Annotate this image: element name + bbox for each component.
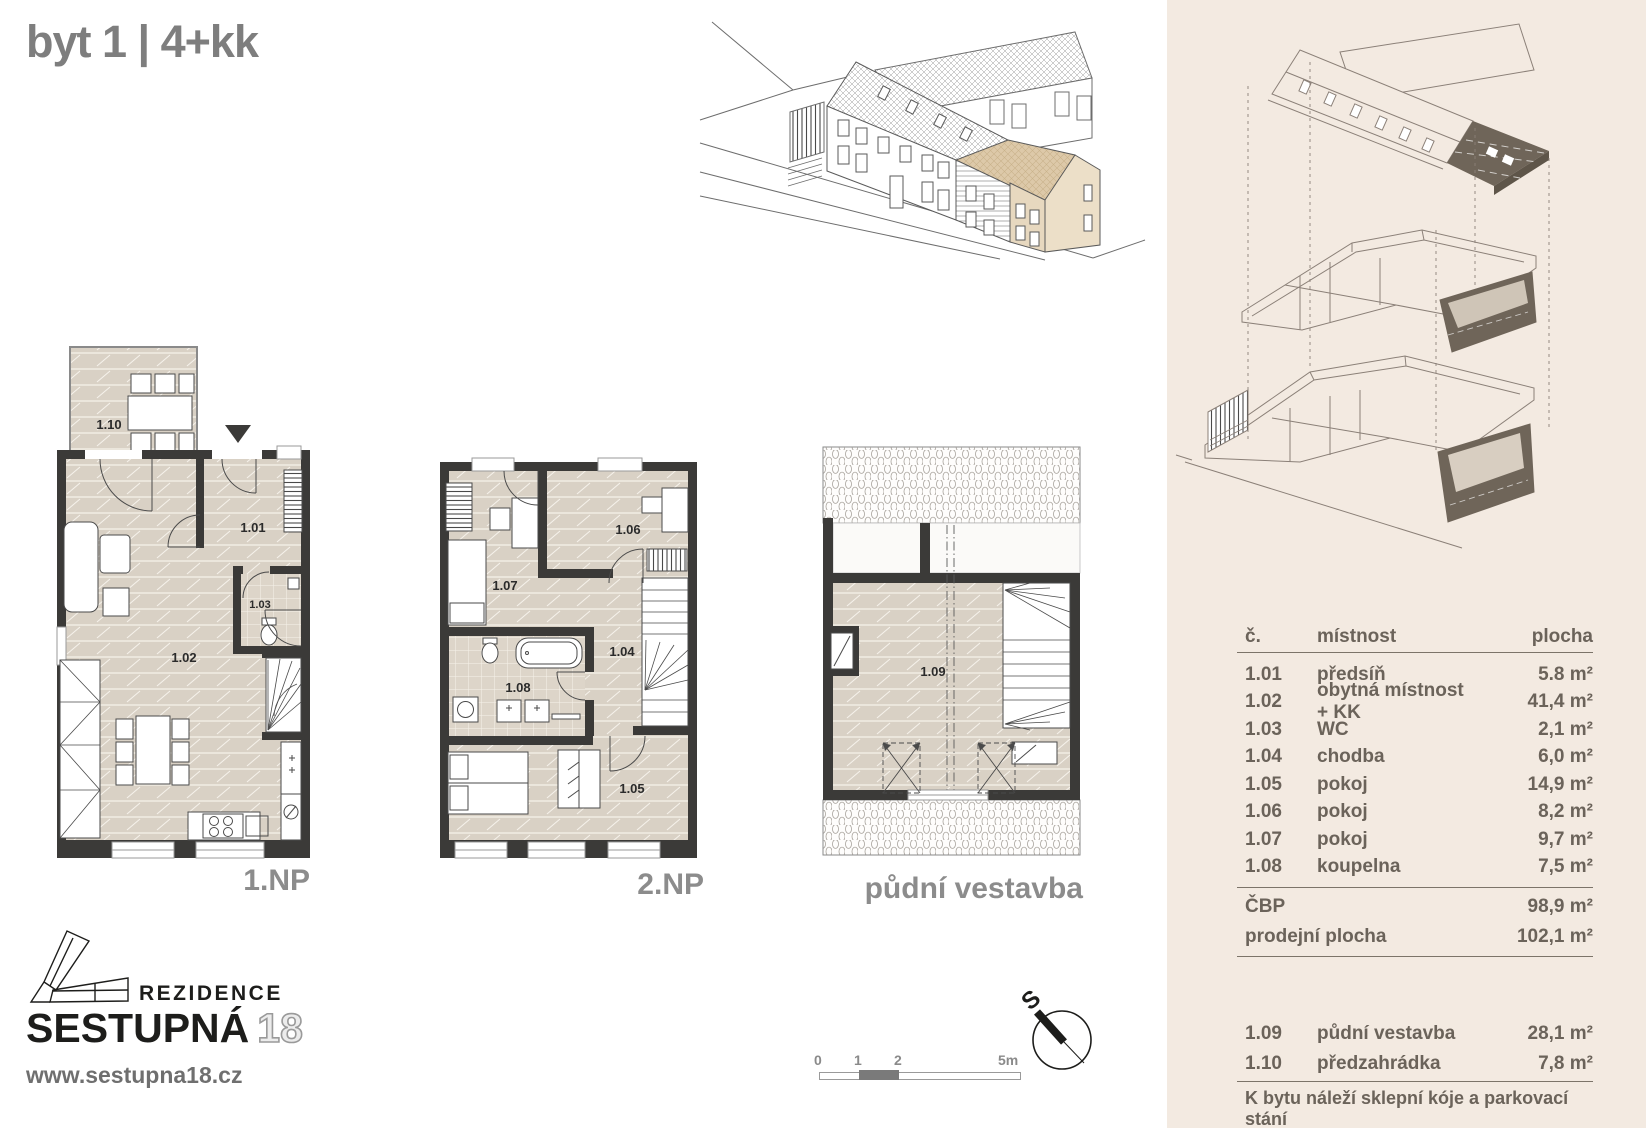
caption-floor-1np: 1.NP — [150, 864, 310, 898]
room-label-107: 1.07 — [492, 578, 517, 593]
scale-tick-0: 0 — [814, 1052, 822, 1068]
room-label-104: 1.04 — [609, 644, 635, 659]
room-name: pokoj — [1317, 774, 1475, 796]
scale-tick-2: 2 — [894, 1052, 902, 1068]
table-row: 1.02obytná místnost + KK41,4 m² — [1237, 689, 1593, 717]
plan-sheet: byt 1 | 4+kk — [0, 0, 1646, 1128]
room-area: 2,1 m² — [1475, 719, 1593, 741]
room-number: 1.10 — [1237, 1053, 1317, 1075]
table-row: 1.09půdní vestavba28,1 m² — [1237, 1019, 1593, 1049]
room-name: koupelna — [1317, 856, 1475, 878]
terrace-furniture — [128, 374, 194, 452]
room-area: 5.8 m² — [1475, 664, 1593, 686]
caption-floor-2np: 2.NP — [544, 868, 704, 902]
exploded-axonometric-drawing — [1167, 0, 1646, 640]
brand-logo-icon — [24, 920, 144, 1015]
room-area: 7,8 m² — [1475, 1053, 1593, 1075]
room-name: půdní vestavba — [1317, 1023, 1475, 1045]
room-area: 41,4 m² — [1475, 691, 1593, 713]
table-row: 1.06pokoj8,2 m² — [1237, 799, 1593, 827]
room-label-109: 1.09 — [920, 664, 945, 679]
website-link[interactable]: www.sestupna18.cz — [26, 1062, 242, 1089]
room-number: 1.02 — [1237, 691, 1317, 713]
table-row: 1.08koupelna7,5 m² — [1237, 854, 1593, 882]
street-axonometric-drawing — [698, 2, 1148, 262]
floor-plan-2np: 1.07 1.06 1.04 1.08 1.05 — [438, 448, 700, 862]
room-area: 28,1 m² — [1475, 1023, 1593, 1045]
compass-icon: S — [1000, 975, 1100, 1075]
table-row: 1.03WC2,1 m² — [1237, 716, 1593, 744]
summary-area: 102,1 m² — [1475, 926, 1593, 948]
summary-label: prodejní plocha — [1237, 926, 1475, 948]
table-row: 1.05pokoj14,9 m² — [1237, 771, 1593, 799]
room-area: 8,2 m² — [1475, 801, 1593, 823]
room-area: 14,9 m² — [1475, 774, 1593, 796]
room-label-108: 1.08 — [505, 680, 530, 695]
room-name: pokoj — [1317, 829, 1475, 851]
scale-tick-1: 1 — [854, 1052, 862, 1068]
room-table: č. místnost plocha 1.01předsíň5.8 m² 1.0… — [1237, 622, 1593, 1128]
room-area: 7,5 m² — [1475, 856, 1593, 878]
summary-area: 98,9 m² — [1475, 896, 1593, 918]
summary-row-sale-area: prodejní plocha102,1 m² — [1237, 922, 1593, 952]
table-row: 1.10předzahrádka7,8 m² — [1237, 1049, 1593, 1079]
brand-number: 18 — [257, 1005, 303, 1051]
room-area: 9,7 m² — [1475, 829, 1593, 851]
room-number: 1.05 — [1237, 774, 1317, 796]
room-label-102: 1.02 — [171, 650, 196, 665]
room-name: obytná místnost + KK — [1317, 680, 1475, 724]
col-header-number: č. — [1237, 626, 1317, 648]
entrance-arrow-icon — [225, 425, 251, 443]
summary-row-cbp: ČBP98,9 m² — [1237, 892, 1593, 922]
room-area: 6,0 m² — [1475, 746, 1593, 768]
col-header-area: plocha — [1475, 626, 1593, 648]
floor-plan-attic: 1.09 — [820, 443, 1088, 863]
table-row: 1.04chodba6,0 m² — [1237, 744, 1593, 772]
room-label-105: 1.05 — [619, 781, 644, 796]
scale-bar-track — [819, 1072, 1021, 1080]
page-title: byt 1 | 4+kk — [26, 16, 258, 68]
brand-prefix: REZIDENCE — [139, 982, 283, 1006]
room-name: pokoj — [1317, 801, 1475, 823]
col-header-room: místnost — [1317, 626, 1475, 648]
room-number: 1.01 — [1237, 664, 1317, 686]
room-name: předzahrádka — [1317, 1053, 1475, 1075]
room-number: 1.06 — [1237, 801, 1317, 823]
room-label-106: 1.06 — [615, 522, 640, 537]
caption-floor-attic: půdní vestavba — [800, 872, 1083, 906]
room-number: 1.09 — [1237, 1023, 1317, 1045]
table-footnote: K bytu náleží sklepní kóje a parkovací s… — [1237, 1082, 1593, 1128]
floor-plan-1np: 1.10 1.03 — [50, 340, 318, 868]
room-label-101: 1.01 — [240, 520, 265, 535]
room-number: 1.08 — [1237, 856, 1317, 878]
room-number: 1.07 — [1237, 829, 1317, 851]
table-row: 1.07pokoj9,7 m² — [1237, 826, 1593, 854]
scale-bar-segment — [859, 1070, 899, 1080]
room-name: chodba — [1317, 746, 1475, 768]
room-number: 1.03 — [1237, 719, 1317, 741]
room-label-110: 1.10 — [96, 417, 121, 432]
table-header-row: č. místnost plocha — [1237, 622, 1593, 652]
room-label-103: 1.03 — [249, 599, 270, 611]
summary-label: ČBP — [1237, 896, 1475, 918]
brand-name-text: SESTUPNÁ — [26, 1005, 249, 1051]
info-panel: č. místnost plocha 1.01předsíň5.8 m² 1.0… — [1167, 0, 1646, 1128]
brand-name: SESTUPNÁ18 — [26, 1005, 303, 1052]
room-number: 1.04 — [1237, 746, 1317, 768]
room-name: WC — [1317, 719, 1475, 741]
